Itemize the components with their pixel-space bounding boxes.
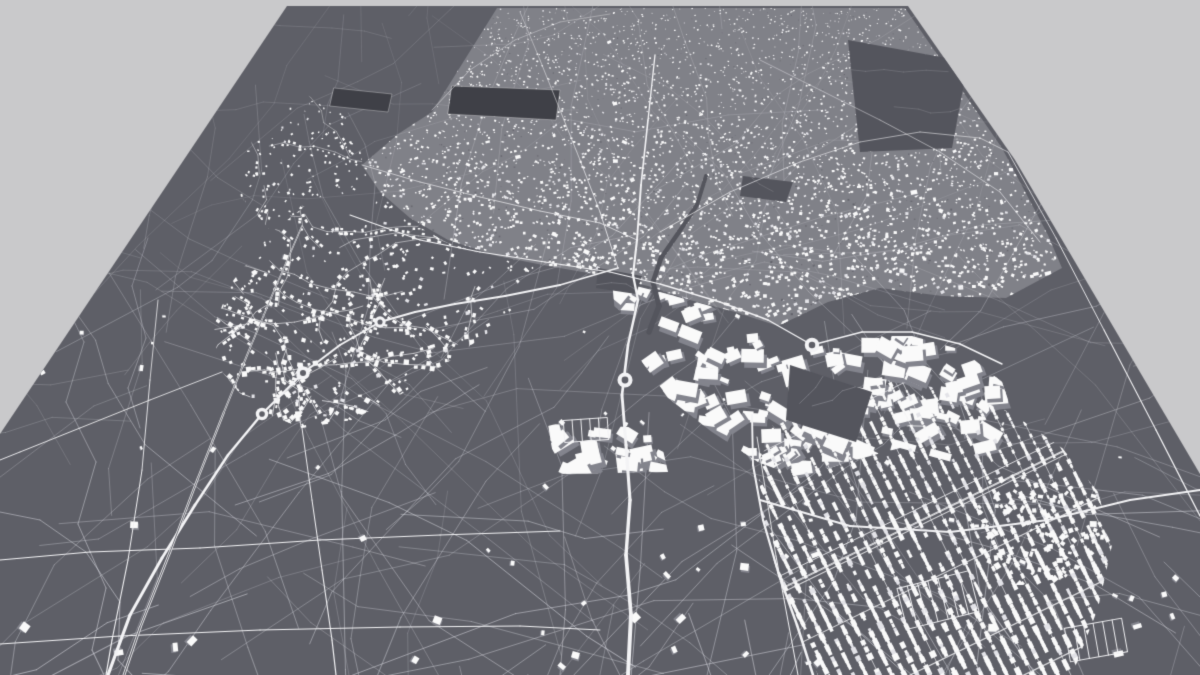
- map-viewport: [0, 0, 1200, 675]
- city-map-3d-render: [0, 0, 1200, 675]
